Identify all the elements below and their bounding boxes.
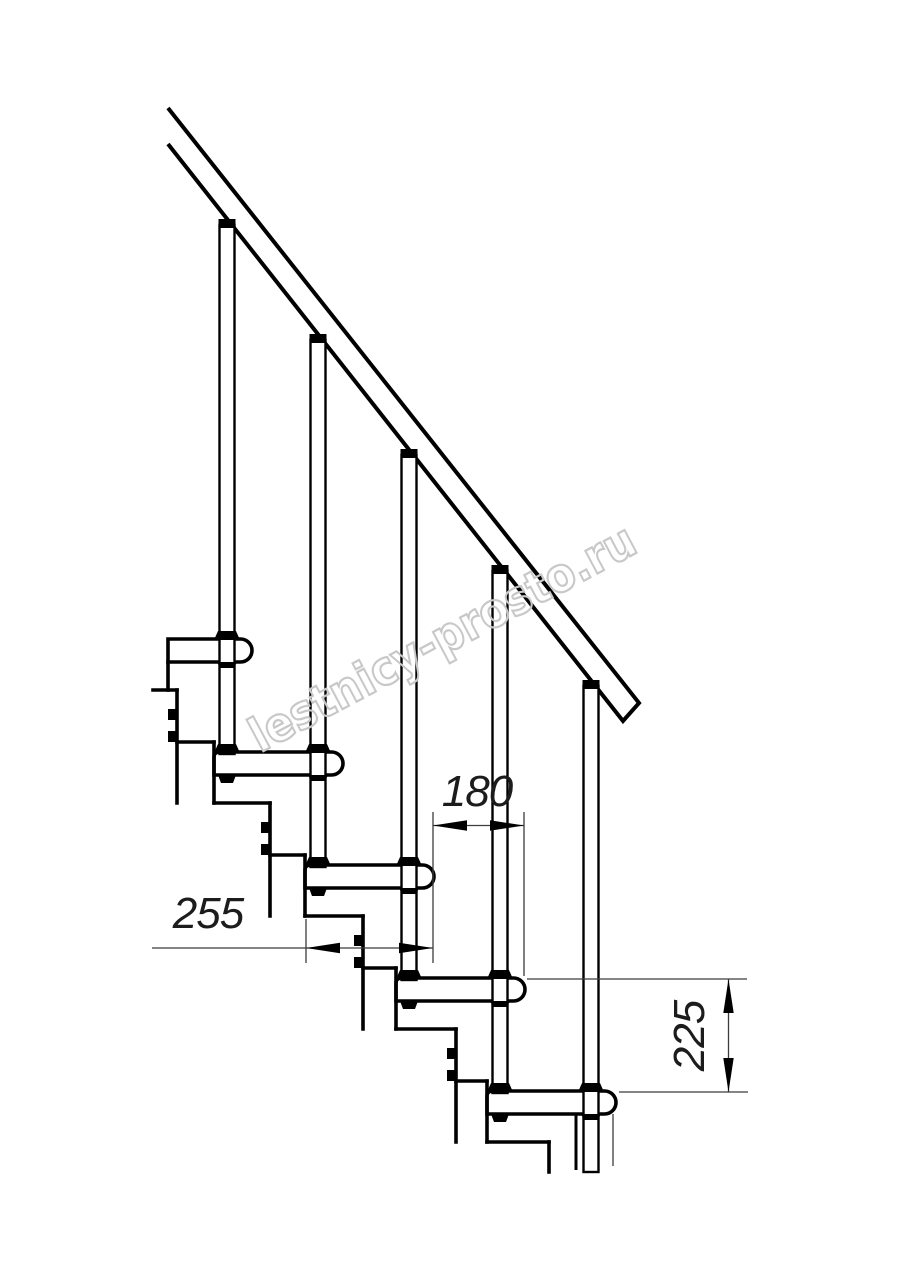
baluster-under-collar: [490, 1001, 510, 1007]
bolt: [168, 731, 177, 742]
baluster-under-collar: [217, 662, 237, 668]
bolt: [447, 1048, 456, 1059]
arrowhead: [723, 1058, 733, 1092]
anchor-nut: [309, 888, 327, 896]
baluster-under-collar: [399, 888, 419, 894]
dimension-run: 180: [433, 767, 524, 976]
bolt: [261, 844, 270, 855]
baluster-under-collar: [308, 775, 328, 781]
dimension-depth-value: 255: [172, 889, 245, 938]
baluster-rail-cap: [310, 334, 327, 343]
staircase-drawing: 180 255 225 lestnicy-prosto.ru: [0, 0, 914, 1280]
bolt: [261, 822, 270, 833]
baluster-collar: [305, 744, 331, 753]
baluster-collar: [578, 1083, 604, 1092]
bolt: [354, 957, 363, 968]
arrowhead: [433, 820, 467, 830]
arrowhead: [306, 943, 340, 953]
bolt: [354, 935, 363, 946]
dimension-depth: 255: [152, 889, 433, 963]
drawing-page: 180 255 225 lestnicy-prosto.ru: [0, 0, 914, 1280]
baluster-under-collar: [581, 1114, 601, 1120]
arrowhead: [723, 979, 733, 1013]
anchor-nut: [400, 1001, 418, 1009]
dimension-rise: 225: [527, 979, 748, 1092]
baluster: [220, 225, 235, 754]
baluster-collar: [487, 970, 513, 979]
anchor-nut: [218, 775, 236, 783]
baluster-collar: [396, 970, 422, 979]
bolt: [447, 1070, 456, 1081]
baluster-collar: [396, 857, 422, 866]
dimension-run-value: 180: [442, 767, 514, 816]
dimension-rise-value: 225: [665, 999, 714, 1072]
baluster-rail-cap: [401, 449, 418, 458]
baluster-rail-cap: [583, 680, 600, 689]
baluster: [493, 571, 508, 1093]
bolt: [168, 709, 177, 720]
baluster-collar: [214, 631, 240, 640]
baluster: [402, 455, 417, 980]
baluster-collar: [305, 857, 331, 866]
baluster-rail-cap: [219, 219, 236, 228]
anchor-nut: [491, 1114, 509, 1122]
baluster-collar: [487, 1083, 513, 1092]
baluster-collar: [214, 744, 240, 753]
tread: [168, 639, 252, 662]
baluster: [311, 340, 326, 867]
baluster: [584, 686, 599, 1172]
